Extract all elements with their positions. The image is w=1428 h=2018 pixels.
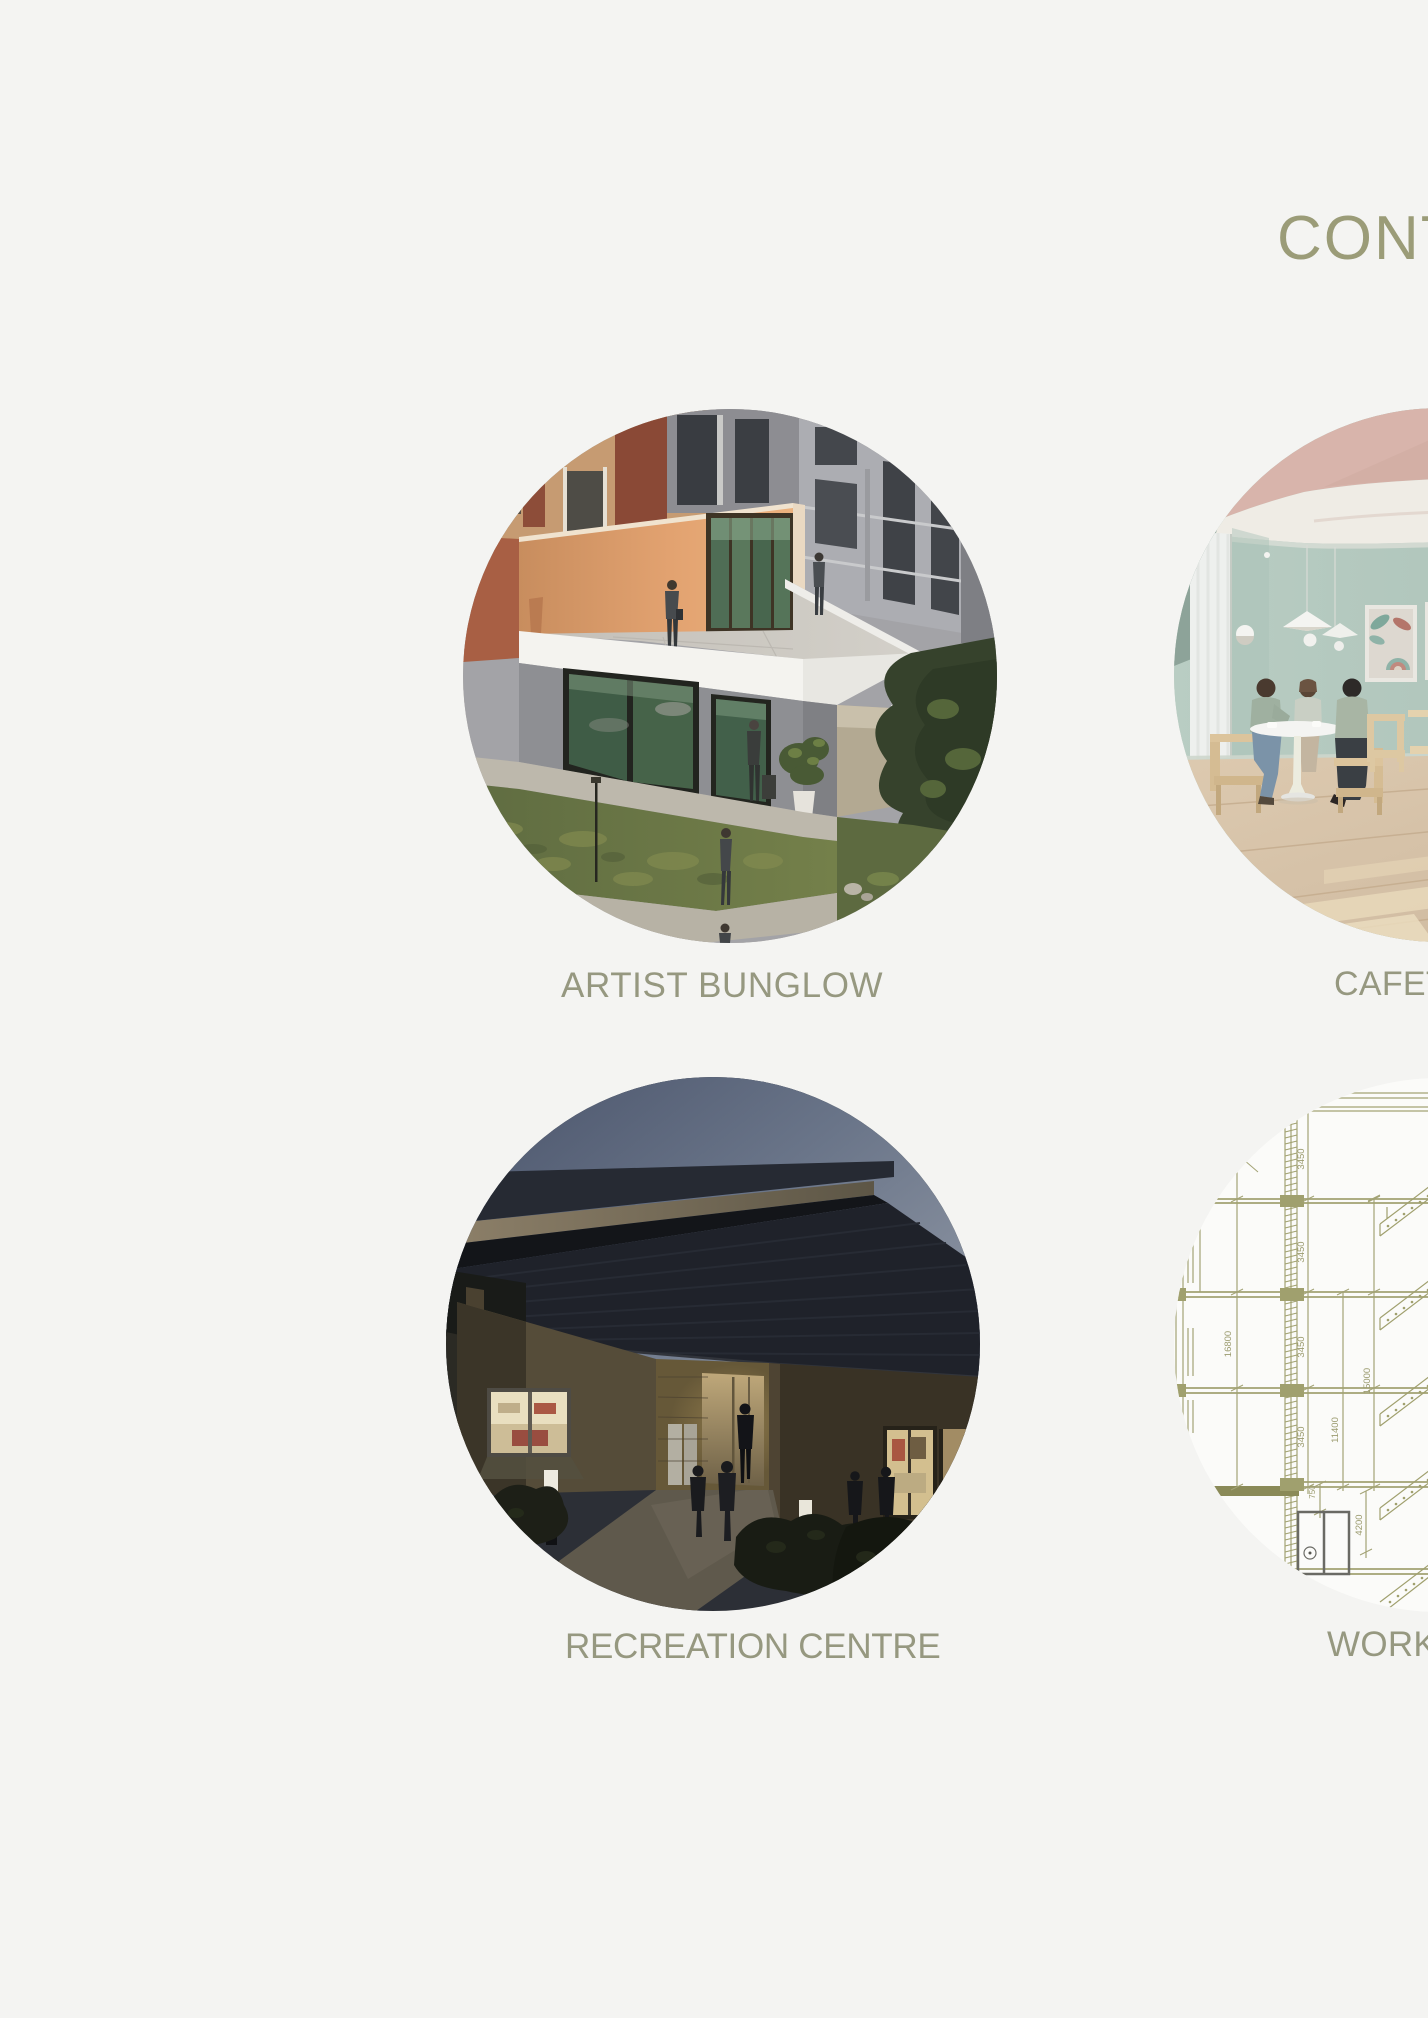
svg-text:750: 750 (1308, 1485, 1317, 1499)
svg-text:3450: 3450 (1296, 1148, 1307, 1169)
svg-text:15000: 15000 (1362, 1368, 1373, 1394)
svg-text:11400: 11400 (1330, 1417, 1341, 1443)
svg-text:16800: 16800 (1223, 1331, 1234, 1357)
svg-text:3450: 3450 (1296, 1241, 1307, 1262)
svg-text:3450: 3450 (1296, 1426, 1307, 1447)
svg-text:3450: 3450 (1296, 1336, 1307, 1357)
svg-text:4200: 4200 (1354, 1514, 1365, 1535)
